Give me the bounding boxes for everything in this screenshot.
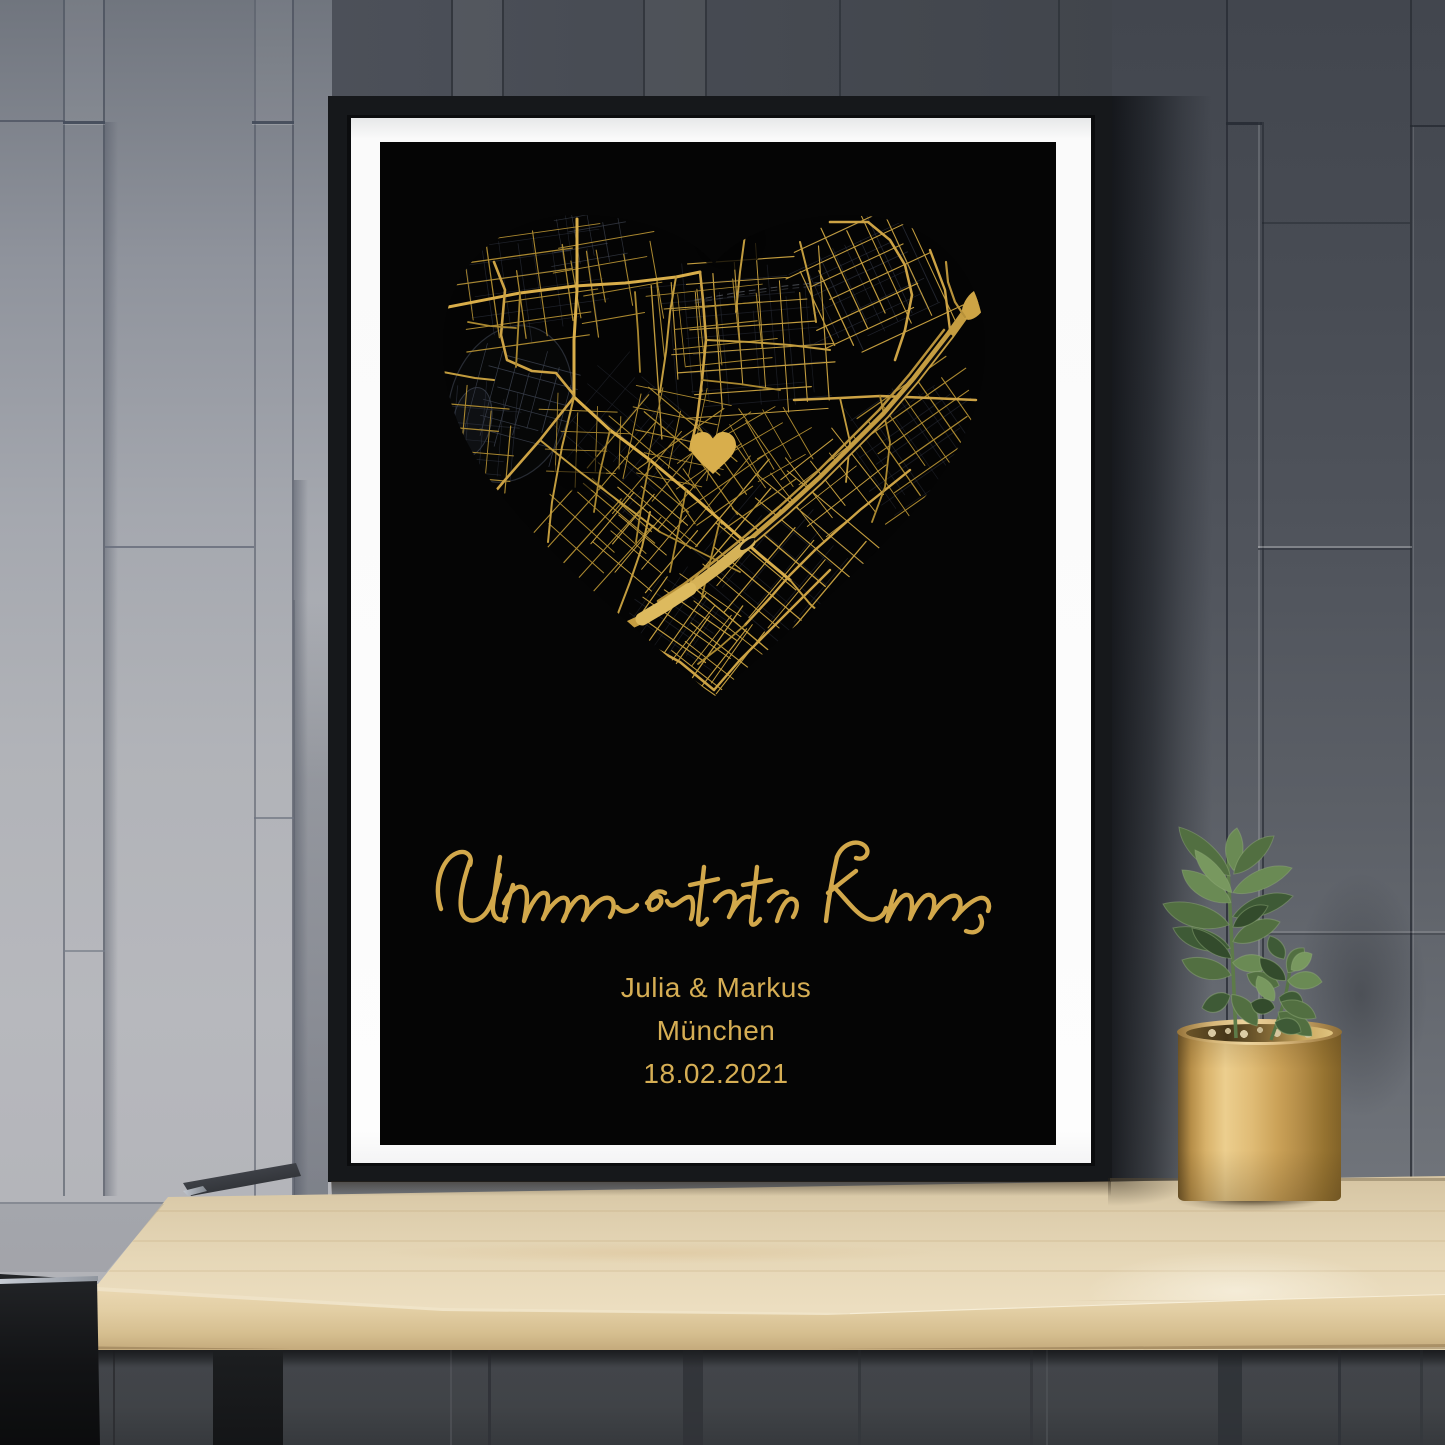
svg-text:Julia & Markus: Julia & Markus (621, 972, 812, 1003)
svg-text:18.02.2021: 18.02.2021 (643, 1058, 788, 1089)
svg-text:München: München (657, 1015, 776, 1046)
